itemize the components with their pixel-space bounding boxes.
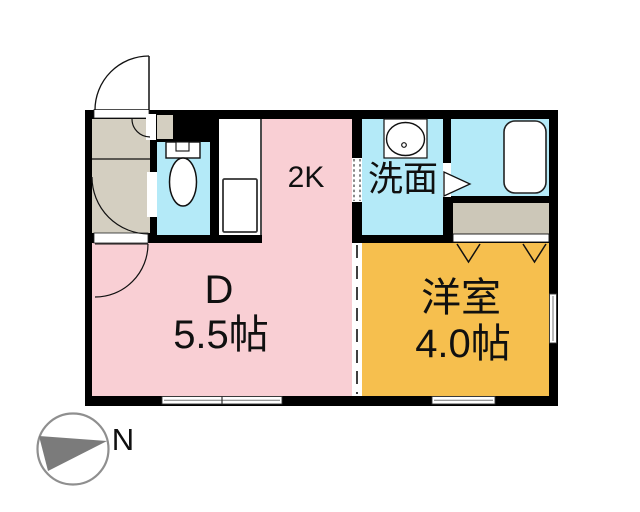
sink-icon xyxy=(384,119,427,158)
window-bottom-dining xyxy=(162,397,282,405)
vanity-bowl xyxy=(387,123,425,156)
entrance-opening xyxy=(94,110,149,119)
kitchen-sink xyxy=(223,179,257,232)
floorplan-page: 2K 洗面 D 5.5帖 洋室 4.0帖 N xyxy=(0,0,640,512)
toilet-door-opening xyxy=(147,172,157,217)
entry-area xyxy=(92,119,150,233)
window-bottom-western xyxy=(432,397,495,405)
toilet-tank-notch xyxy=(176,142,189,151)
window-right-western xyxy=(550,294,557,343)
entrance-door-arc xyxy=(95,56,149,110)
label-western: 洋室 xyxy=(421,276,501,320)
bathtub-icon xyxy=(504,121,546,193)
closet-area xyxy=(453,203,549,234)
label-western-size: 4.0帖 xyxy=(415,322,511,366)
entry-cabinet-opening xyxy=(146,114,156,140)
label-washroom: 洗面 xyxy=(368,160,438,199)
entry-cabinet xyxy=(157,115,173,139)
toilet-bowl xyxy=(170,158,197,206)
label-layout-type: 2K xyxy=(288,161,325,194)
floorplan-svg: 2K 洗面 D 5.5帖 洋室 4.0帖 N xyxy=(0,0,640,512)
compass: N xyxy=(38,414,135,485)
label-dining-size: 5.5帖 xyxy=(173,313,269,357)
entry-dining-opening xyxy=(94,233,148,243)
label-dining: D xyxy=(205,268,234,312)
closet-door-track xyxy=(453,234,549,242)
compass-n-label: N xyxy=(112,422,134,457)
vanity-drain xyxy=(402,143,407,148)
